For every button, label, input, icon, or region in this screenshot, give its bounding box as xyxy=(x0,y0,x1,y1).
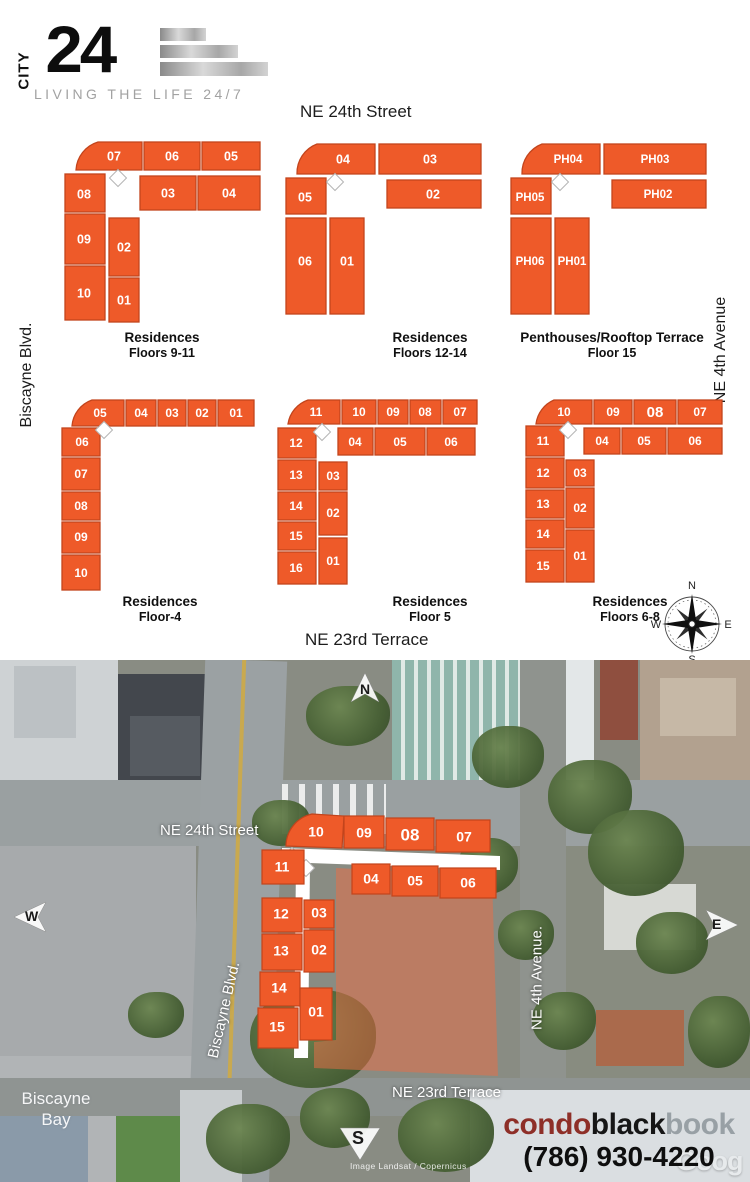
map-unit-label: 09 xyxy=(356,825,372,841)
unit-label: 12 xyxy=(536,466,550,480)
unit-label: 08 xyxy=(418,405,432,419)
tree-blob xyxy=(206,1104,290,1174)
compass-rose-icon: N E S W xyxy=(650,580,734,664)
unit-label: 14 xyxy=(289,499,303,513)
unit-label: 01 xyxy=(573,549,587,563)
unit-label: 09 xyxy=(606,405,620,419)
caption-floor-5: ResidencesFloor 5 xyxy=(392,594,467,624)
map-unit-label: 01 xyxy=(308,1004,324,1020)
unit-label: 04 xyxy=(348,435,362,449)
tree-blob xyxy=(588,810,684,896)
condoblackbook-brand: condoblackbook (786) 930-4220 xyxy=(488,1109,750,1171)
caption-floor-4: ResidencesFloor-4 xyxy=(122,594,197,624)
map-attribution: Image Landsat / Copernicus xyxy=(350,1161,467,1171)
map-unit-label: 15 xyxy=(269,1019,285,1035)
floorplan-floor-5: 11100908071204050613031402151601 xyxy=(276,398,481,590)
unit-label: 07 xyxy=(107,149,121,163)
tree-blob xyxy=(472,726,544,788)
unit-label: 11 xyxy=(537,434,550,448)
aerial-map: 100908071104050612031302141501 NE 24th S… xyxy=(0,660,750,1182)
unit-label: 07 xyxy=(453,405,467,419)
building-overlay: 100908071104050612031302141501 xyxy=(252,808,502,1078)
map-unit-label: 03 xyxy=(311,905,327,921)
unit-label: 03 xyxy=(573,466,587,480)
rose-n: N xyxy=(688,580,696,592)
unit-label: PH06 xyxy=(516,256,545,268)
floorplan-floors-12-14: 040305020601 xyxy=(283,140,483,322)
unit-label: 08 xyxy=(74,499,88,513)
map-street-ne23: NE 23rd Terrace xyxy=(392,1084,501,1101)
unit-label: 02 xyxy=(426,187,440,201)
map-unit-label: 12 xyxy=(273,906,289,922)
unit-label: 02 xyxy=(195,406,209,420)
north-arrow-icon: N xyxy=(348,672,382,706)
map-unit-label: 08 xyxy=(401,825,420,844)
map-unit-label: 02 xyxy=(311,942,327,958)
logo-city-text: CITY xyxy=(16,51,33,89)
unit-label: 14 xyxy=(536,527,550,541)
unit-label: 05 xyxy=(224,149,238,163)
unit-label: 13 xyxy=(536,497,550,511)
floorplan-floors-9-11: 07060508030409021001 xyxy=(62,140,262,328)
caption-floors-9-11: ResidencesFloors 9-11 xyxy=(124,330,199,360)
south-arrow-icon: S xyxy=(338,1126,382,1164)
caption-floors-12-14: ResidencesFloors 12-14 xyxy=(392,330,467,360)
rose-w: W xyxy=(651,619,662,631)
street-label-ne24: NE 24th Street xyxy=(300,102,412,122)
map-unit-label: 14 xyxy=(271,980,287,996)
unit-label: 02 xyxy=(573,501,587,515)
unit-label: 09 xyxy=(386,405,400,419)
unit-label: PH05 xyxy=(516,192,545,204)
unit-label: 03 xyxy=(326,469,340,483)
unit-label: 06 xyxy=(298,254,312,268)
unit-label: 10 xyxy=(352,405,366,419)
unit-label: 10 xyxy=(77,286,91,300)
keyplan-page: CITY 24 LIVING THE LIFE 24/7 NE 24th Str… xyxy=(0,0,750,1182)
unit-label: PH03 xyxy=(641,154,670,166)
map-unit-label: 07 xyxy=(456,829,472,845)
unit-label: 04 xyxy=(134,406,148,420)
map-terrain-block xyxy=(596,1010,684,1066)
west-arrow-icon: W xyxy=(12,900,52,934)
floorplan-floors-6-8: 100908071104050612031302141501 xyxy=(524,398,729,590)
map-unit-label: 10 xyxy=(308,824,324,840)
rose-e: E xyxy=(724,619,731,631)
unit-label: 06 xyxy=(688,434,702,448)
logo-tagline: LIVING THE LIFE 24/7 xyxy=(34,86,244,102)
tree-blob xyxy=(128,992,184,1038)
unit-label: 01 xyxy=(340,254,354,268)
unit-label: 06 xyxy=(165,149,179,163)
unit-label: 04 xyxy=(595,434,609,448)
unit-label: 08 xyxy=(77,187,91,201)
floorplan-penthouse-15: PH04PH03PH05PH02PH06PH01 xyxy=(508,140,708,322)
unit-label: 03 xyxy=(165,406,179,420)
unit-label: 10 xyxy=(74,566,88,580)
unit-label: 12 xyxy=(289,436,303,450)
map-terrain-block xyxy=(14,666,76,738)
map-street-ne4: NE 4th Avenue. xyxy=(529,926,546,1030)
unit-label: PH04 xyxy=(554,154,583,166)
floorplan-floor-4: 05040302010607080910 xyxy=(60,398,260,598)
street-label-ne4: NE 4th Avenue xyxy=(712,297,730,403)
brand-phone-number: (786) 930-4220 xyxy=(488,1142,750,1171)
map-unit-label: 11 xyxy=(275,859,290,875)
unit-label: 02 xyxy=(117,240,131,254)
elevator-lobby xyxy=(327,174,344,191)
caption-penthouse-15: Penthouses/Rooftop TerraceFloor 15 xyxy=(520,330,704,360)
unit-label: 16 xyxy=(289,561,303,575)
unit-label: 02 xyxy=(326,506,340,520)
unit-label: 08 xyxy=(647,404,664,421)
tree-blob xyxy=(498,910,554,960)
tree-blob xyxy=(636,912,708,974)
unit-label: 13 xyxy=(289,468,303,482)
unit-label: 06 xyxy=(75,435,89,449)
unit-label: 03 xyxy=(423,152,437,166)
map-unit-label: 13 xyxy=(273,943,289,959)
unit-label: PH02 xyxy=(644,189,673,201)
map-unit-label: 06 xyxy=(460,875,476,891)
courtyard-overlay xyxy=(314,868,498,1076)
elevator-lobby xyxy=(110,170,127,187)
unit-label: 15 xyxy=(289,529,303,543)
map-unit-label: 04 xyxy=(363,871,379,887)
unit-label: 05 xyxy=(637,434,651,448)
map-terrain-block xyxy=(600,660,638,740)
unit-label: 01 xyxy=(326,554,340,568)
unit-label: 01 xyxy=(117,293,131,307)
unit-label: 05 xyxy=(298,190,312,204)
unit-label: 09 xyxy=(77,232,91,246)
east-arrow-icon: E xyxy=(700,908,740,942)
unit-label: 01 xyxy=(229,406,243,420)
unit-label: PH01 xyxy=(558,256,587,268)
unit-label: 10 xyxy=(557,405,571,419)
unit-label: 04 xyxy=(222,186,236,200)
unit-label: 11 xyxy=(310,405,323,419)
unit-label: 03 xyxy=(161,186,175,200)
unit-label: 07 xyxy=(74,467,88,481)
tree-blob xyxy=(688,996,750,1068)
map-street-ne24: NE 24th Street xyxy=(160,822,258,839)
unit-label: 15 xyxy=(536,559,550,573)
logo-bars-icon xyxy=(160,28,268,80)
map-unit-label: 05 xyxy=(407,873,423,889)
condoblackbook-logo: condoblackbook xyxy=(488,1109,750,1141)
map-terrain-block xyxy=(130,716,200,776)
unit-label: 07 xyxy=(693,405,707,419)
city24-logo: CITY 24 LIVING THE LIFE 24/7 xyxy=(14,14,314,114)
street-label-ne23: NE 23rd Terrace xyxy=(305,630,428,650)
unit-label: 05 xyxy=(393,435,407,449)
unit-label: 06 xyxy=(444,435,458,449)
map-label-biscayne-bay: BiscayneBay xyxy=(8,1088,104,1131)
map-terrain-block xyxy=(660,678,736,736)
street-label-biscayne: Biscayne Blvd. xyxy=(18,323,36,428)
elevator-lobby xyxy=(552,174,569,191)
unit-label: 04 xyxy=(336,152,350,166)
unit-label: 09 xyxy=(74,530,88,544)
logo-24-text: 24 xyxy=(45,16,114,82)
unit-label: 05 xyxy=(93,406,107,420)
